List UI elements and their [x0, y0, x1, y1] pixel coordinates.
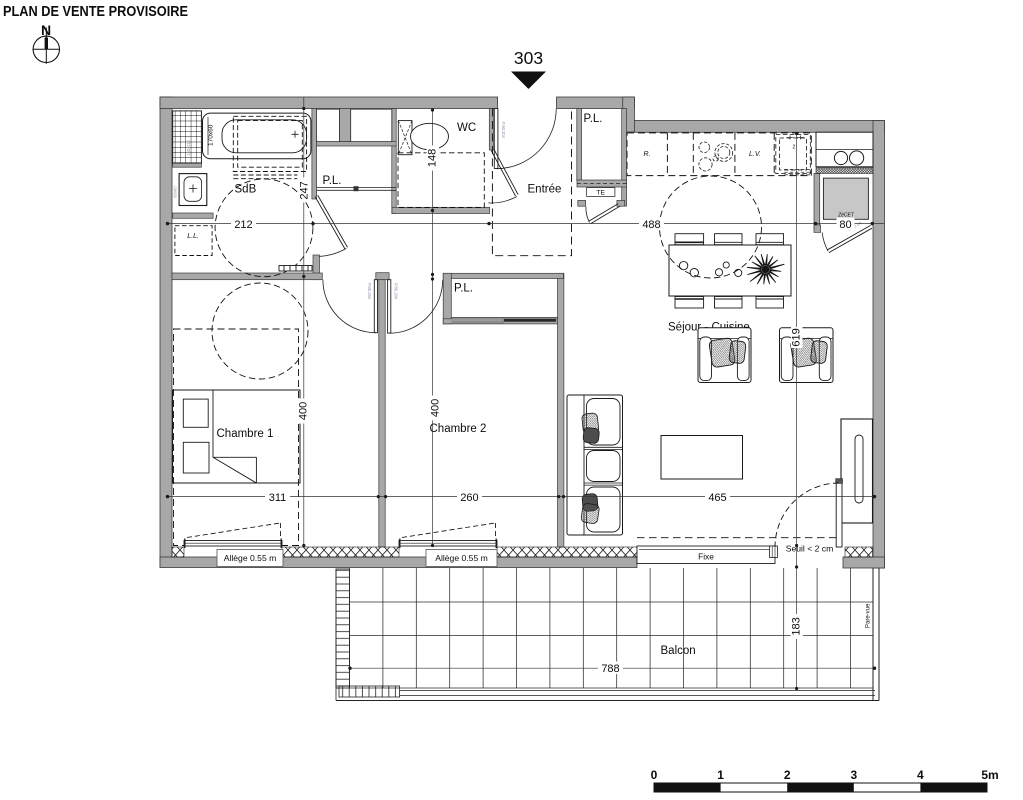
svg-text:P.L.: P.L. [584, 113, 603, 125]
svg-text:Fixe: Fixe [698, 552, 714, 562]
svg-text:260: 260 [460, 492, 478, 504]
svg-text:303: 303 [514, 48, 543, 68]
svg-text:Pare-vue: Pare-vue [866, 603, 872, 628]
svg-text:2: 2 [784, 768, 791, 782]
svg-text:465: 465 [708, 492, 726, 504]
svg-text:60x60: 60x60 [173, 186, 178, 198]
svg-text:80: 80 [839, 219, 851, 231]
svg-text:SdB: SdB [235, 184, 257, 196]
svg-text:Allège 0.55 m: Allège 0.55 m [224, 553, 277, 563]
svg-text:L.V.: L.V. [749, 151, 761, 158]
svg-text:F.90.204: F.90.204 [501, 122, 506, 139]
svg-text:TE: TE [596, 190, 605, 197]
svg-text:488: 488 [642, 219, 660, 231]
svg-text:400: 400 [430, 399, 442, 417]
svg-text:183: 183 [791, 617, 803, 635]
svg-text:WC: WC [457, 122, 476, 134]
svg-text:0: 0 [651, 768, 658, 782]
svg-text:N: N [41, 22, 51, 38]
svg-text:247: 247 [299, 181, 311, 199]
svg-text:619: 619 [791, 328, 803, 346]
svg-text:P.80.204: P.80.204 [394, 283, 399, 300]
svg-text:170x60: 170x60 [208, 124, 215, 146]
svg-text:788: 788 [601, 663, 619, 675]
svg-text:1: 1 [717, 768, 724, 782]
svg-text:Balcon: Balcon [661, 645, 696, 657]
svg-text:311: 311 [269, 492, 287, 504]
svg-text:P.80.204: P.80.204 [367, 283, 372, 300]
svg-text:Chambre 1: Chambre 1 [217, 428, 274, 440]
svg-text:Allège 0.55 m: Allège 0.55 m [435, 553, 488, 563]
svg-text:R.: R. [644, 151, 651, 158]
svg-text:400: 400 [298, 402, 310, 420]
svg-text:5m: 5m [981, 768, 998, 782]
svg-text:Chambre 2: Chambre 2 [430, 423, 487, 435]
svg-text:148: 148 [427, 149, 439, 167]
svg-text:Entrée: Entrée [528, 184, 562, 196]
svg-text:4: 4 [917, 768, 924, 782]
svg-text:140x110: 140x110 [186, 139, 191, 155]
svg-text:Seuil < 2 cm: Seuil < 2 cm [786, 544, 834, 554]
svg-text:2: 2 [793, 145, 796, 151]
svg-text:P.L.: P.L. [454, 283, 473, 295]
svg-text:L.L.: L.L. [187, 233, 199, 240]
svg-text:212: 212 [234, 219, 252, 231]
svg-text:P.L.: P.L. [323, 175, 342, 187]
svg-text:PLAN DE VENTE PROVISOIRE: PLAN DE VENTE PROVISOIRE [3, 3, 188, 20]
svg-text:3: 3 [850, 768, 857, 782]
